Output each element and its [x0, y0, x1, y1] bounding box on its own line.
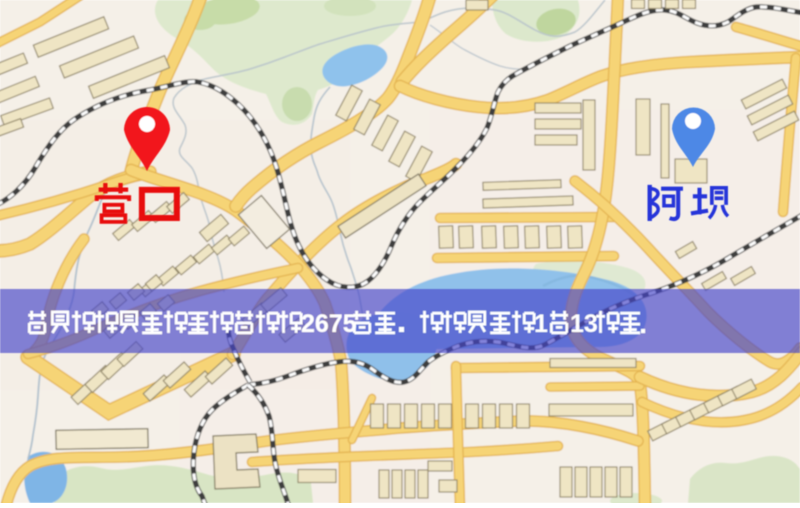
svg-text:13: 13 [570, 310, 598, 338]
svg-text:2675: 2675 [301, 310, 357, 338]
svg-text:1: 1 [534, 310, 548, 338]
